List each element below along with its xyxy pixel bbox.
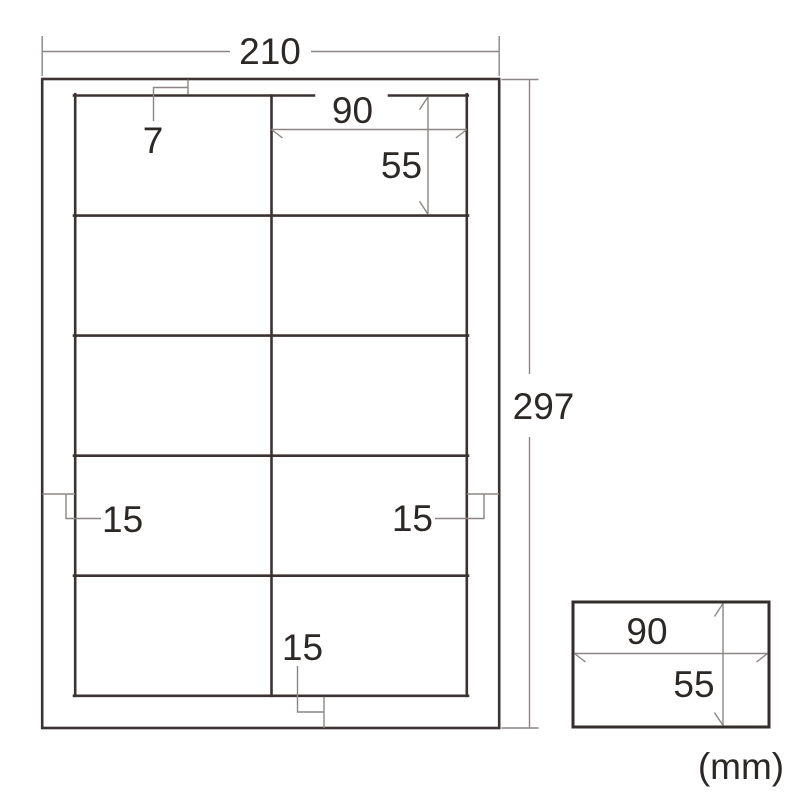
top-margin-value: 7 [143,120,164,161]
detail-dim-width-arrow-right [757,654,768,663]
dim-sheet-height: 297 [502,80,575,729]
bottom-margin-value: 15 [282,627,323,668]
left-margin-value: 15 [102,499,143,540]
dim-right-margin: 15 [392,494,499,539]
dim-top-margin: 7 [143,80,188,162]
label-detail-outline [573,602,769,727]
label-sheet-spec-diagram: 210 297 7 90 55 15 15 [0,0,800,800]
unit-note: (mm) [698,746,784,787]
label-width-value: 90 [332,90,373,131]
dim-sheet-width: 210 [42,31,499,76]
dim-label-height: 55 [381,97,428,214]
dim-bottom-margin: 15 [282,627,324,728]
dim-left-margin-leader [66,494,101,519]
right-margin-value: 15 [392,498,433,539]
detail-dim-height-arrow-bottom [715,713,724,726]
detail-width-value: 90 [626,611,667,652]
label-height-value: 55 [381,145,422,186]
detail-dim-width: 90 [575,611,768,662]
label-detail: 90 55 [573,602,769,727]
dim-left-margin: 15 [42,494,143,540]
dim-right-margin-leader [435,494,484,519]
dim-label-width-arrow-left [272,130,283,139]
detail-dim-height: 55 [673,604,723,726]
detail-dim-height-arrow-top [715,604,724,617]
dim-bottom-margin-leader [298,666,325,712]
dim-label-height-arrow-top [420,97,429,110]
detail-height-value: 55 [673,664,714,705]
dim-label-height-arrow-bottom [420,201,429,214]
sheet-height-value: 297 [513,386,575,427]
dim-label-width-arrow-right [456,130,467,139]
detail-dim-width-arrow-left [575,654,586,663]
dim-top-margin-leader [154,88,189,122]
sheet-width-value: 210 [239,31,301,72]
dim-label-width: 90 [272,90,467,138]
